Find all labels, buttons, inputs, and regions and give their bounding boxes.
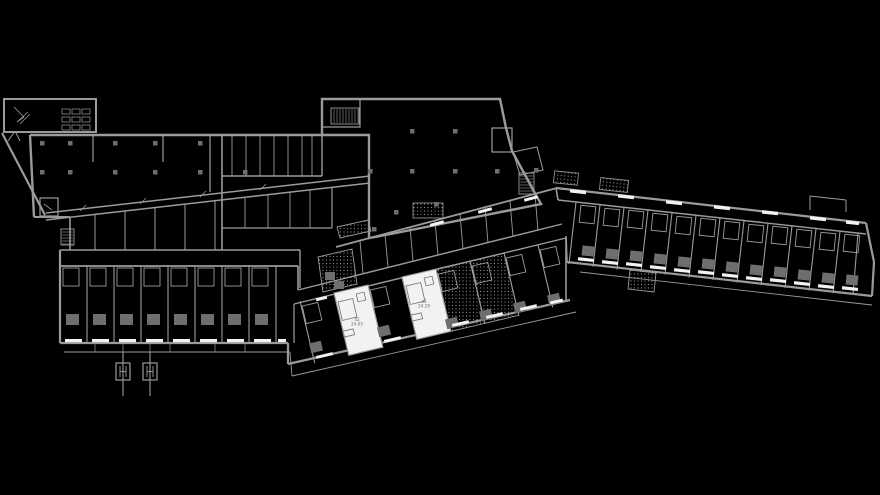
window-sill [92,339,109,342]
window-sill [842,286,858,291]
wall-rect [82,109,90,114]
column [243,170,248,175]
wall-rect [62,109,70,114]
bathroom [506,254,526,275]
bed [334,281,344,289]
bathroom [627,210,644,228]
wall-rect [72,117,80,122]
dot-hatch-area [599,178,628,193]
wall-line [360,241,363,273]
wall-line [785,226,792,288]
bathroom [117,268,133,286]
bed [582,245,595,256]
bathroom [603,208,620,226]
wall-line [30,135,34,217]
wall-rect [62,117,70,122]
bathroom [198,268,214,286]
column [410,169,415,174]
window-sill [173,339,190,342]
window-sill [698,270,714,275]
wall-line [46,176,370,213]
plan-layers: 4224.054524.29 [2,99,874,396]
window-sill [674,268,690,273]
wall-line [809,229,816,291]
wall-line [300,301,315,363]
bathroom [579,205,596,223]
bathroom [540,246,560,267]
wall-line [665,213,672,275]
wall-line [866,223,874,262]
bed [606,248,619,259]
wall-line [556,188,558,200]
wall-line [641,210,648,272]
bathroom [171,268,187,286]
dot-hatch-area [337,220,371,238]
bed [377,325,391,337]
cad-canvas: 4224.054524.29 [0,0,880,495]
bathroom [675,216,692,234]
bathroom [63,268,79,286]
wall-line [593,205,600,267]
column [68,141,73,146]
bathroom [302,302,322,323]
window-sill [794,281,810,286]
wall-line [17,112,28,122]
bed [654,253,667,264]
window-sill [227,339,244,342]
column [113,170,118,175]
bed [846,274,859,285]
column [153,141,158,146]
window-sill [746,276,762,281]
wall-rect [82,117,90,122]
bathroom [795,229,812,247]
bathroom [370,286,390,307]
window-sill [770,278,786,283]
wall-rect [72,109,80,114]
wall-line [713,218,720,280]
wall-line [14,107,24,117]
wall-line [569,202,576,264]
column [534,168,539,173]
wall-rect [62,125,70,130]
bathroom [252,268,268,286]
wall-line [410,227,413,261]
wall-line [200,191,206,197]
wall-line [761,223,768,285]
bathroom [747,224,764,242]
window-sill [818,284,834,289]
bed [309,341,323,353]
bathroom [699,218,716,236]
bed [174,314,187,325]
wall-line [260,184,266,190]
column [40,141,45,146]
window-sill [316,352,333,359]
bathroom [723,221,740,239]
wall-line [485,207,488,243]
column [153,170,158,175]
dot-hatch-area [553,171,578,185]
bathroom [90,268,106,286]
wall-rect [72,125,80,130]
room-area-label: 24.29 [418,304,430,309]
window-sill [650,265,666,270]
column [372,227,377,232]
column [198,170,203,175]
bed [630,250,643,261]
column [368,169,373,174]
wall-rect [82,125,90,130]
bathroom [225,268,241,286]
bathroom [651,213,668,231]
dot-hatch-area [628,270,656,292]
window-sill [254,339,271,342]
window-sill [762,210,778,215]
window-sill [146,339,163,342]
column [113,141,118,146]
bathroom [819,232,836,250]
bed [726,261,739,272]
bed [120,314,133,325]
column [198,141,203,146]
column [495,169,500,174]
wall-line [689,215,696,277]
bed [66,314,79,325]
column [453,129,458,134]
room-area-label: 24.05 [351,322,363,327]
wall-line [810,196,846,200]
wall-line [566,236,567,262]
wall-line [833,231,840,293]
wall-line [385,234,388,267]
bed [325,272,335,280]
window-sill [578,257,594,262]
bathroom [771,226,788,244]
column [394,210,399,215]
bed [93,314,106,325]
wall-line [2,133,45,215]
column [434,202,439,207]
bed [201,314,214,325]
column [40,170,45,175]
wall-line [737,221,744,283]
bed [774,266,787,277]
floor-plan: 4224.054524.29 [0,0,880,495]
stair-hatch [61,229,74,245]
bed [228,314,241,325]
window-sill [384,336,401,343]
window-sill [119,339,136,342]
window-sill [65,339,82,342]
bed [798,269,811,280]
bed [702,258,715,269]
wall-line [46,183,370,220]
bed [750,264,763,275]
wall-line [853,233,858,295]
bed [147,314,160,325]
window-sill [200,339,217,342]
wall-line [44,204,52,210]
window-sill [626,262,642,267]
wall-line [510,201,513,237]
wall-line [872,262,874,296]
building-outline [322,99,360,127]
window-sill [722,273,738,278]
bed [822,272,835,283]
column [453,169,458,174]
column [68,170,73,175]
column [410,129,415,134]
window-sill [278,339,286,342]
bathroom [144,268,160,286]
bed [255,314,268,325]
wall-line [617,207,624,269]
window-sill [602,260,618,265]
bed [678,256,691,267]
